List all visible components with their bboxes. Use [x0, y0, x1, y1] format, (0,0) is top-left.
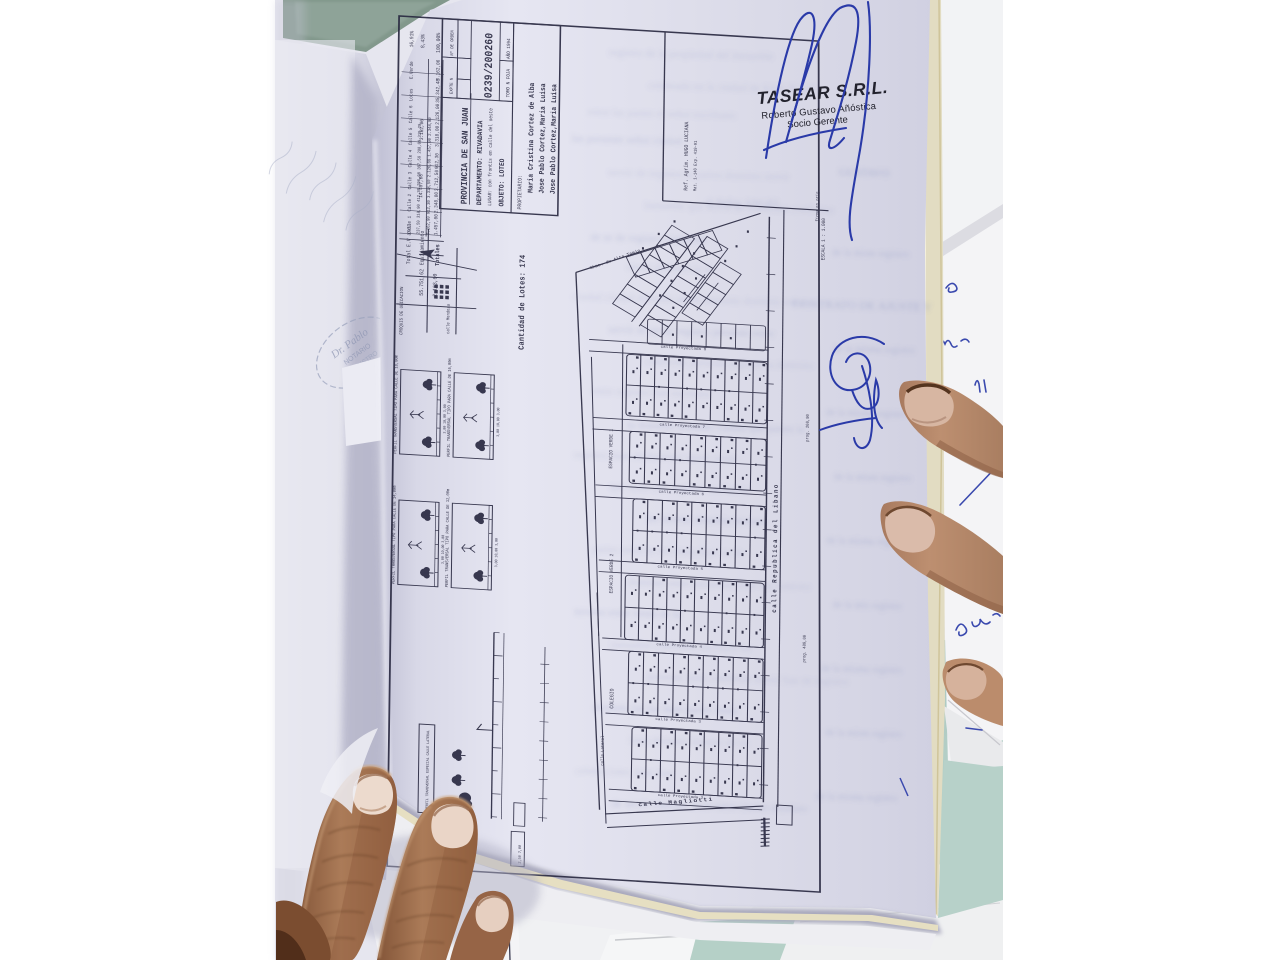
- svg-text:ESPACIO VERDE 1: ESPACIO VERDE 1: [608, 429, 615, 469]
- svg-text:55.751,62: 55.751,62: [419, 269, 426, 296]
- svg-text:3,00 10,00 3,00: 3,00 10,00 3,00: [495, 538, 500, 567]
- svg-text:Calle 2: Calle 2: [407, 193, 414, 211]
- svg-text:Maria Cristina Cortez de Alba: Maria Cristina Cortez de Alba: [527, 83, 537, 194]
- svg-text:3.318,00: 3.318,00: [434, 126, 441, 148]
- svg-text:de la mism registro: de la mism registro: [834, 472, 911, 485]
- svg-text:OBJETO: LOTEO: OBJETO: LOTEO: [497, 158, 506, 206]
- svg-text:ESPACIO VERDE 2: ESPACIO VERDE 2: [608, 553, 615, 593]
- svg-text:PROPIETARIO:: PROPIETARIO:: [517, 175, 524, 210]
- svg-text:16,91%: 16,91%: [409, 31, 416, 48]
- svg-text:Ref. Agrim. HUGO LUCIANA: Ref. Agrim. HUGO LUCIANA: [683, 121, 690, 191]
- svg-text:3.712,50: 3.712,50: [434, 170, 441, 192]
- svg-text:1.457,00: 1.457,00: [433, 214, 440, 236]
- svg-text:calle Lateral: calle Lateral: [600, 735, 606, 766]
- svg-text:prog. 260,00: prog. 260,00: [806, 414, 811, 442]
- svg-text:2.126,00: 2.126,00: [434, 103, 441, 125]
- svg-text:Mat. 1-140 Exp. 410-91: Mat. 1-140 Exp. 410-91: [694, 140, 699, 191]
- svg-text:prog. 480,00: prog. 480,00: [803, 634, 808, 662]
- svg-text:firma en orig.: firma en orig.: [815, 189, 821, 222]
- svg-text:TOMO N FOJA: TOMO N FOJA: [505, 69, 512, 98]
- svg-text:COLEGIO: COLEGIO: [609, 688, 616, 708]
- svg-text:de la mism registro: de la mism registro: [832, 247, 909, 260]
- svg-text:de la misma registro: de la misma registro: [816, 791, 898, 804]
- svg-text:GUSTAVO: GUSTAVO: [839, 167, 890, 180]
- svg-text:0239/200260: 0239/200260: [483, 32, 497, 98]
- svg-text:Calle 3: Calle 3: [407, 171, 414, 189]
- svg-text:8,43%: 8,43%: [420, 34, 427, 48]
- svg-text:Calle 6: Calle 6: [408, 105, 415, 123]
- svg-text:de la mism registro: de la mism registro: [825, 727, 902, 740]
- svg-text:100,00%: 100,00%: [436, 32, 443, 53]
- svg-text:de la mis registro: de la mis registro: [833, 600, 902, 613]
- svg-text:de la misma registro: de la misma registro: [821, 663, 903, 676]
- svg-text:2.348,00: 2.348,00: [433, 192, 440, 214]
- svg-text:Jose Pablo Cortez,Maria Luisa: Jose Pablo Cortez,Maria Luisa: [549, 84, 559, 195]
- svg-text:DEPARTAMENTO: RIVADAVIA: DEPARTAMENTO: RIVADAVIA: [475, 120, 485, 205]
- svg-text:912,30: 912,30: [434, 153, 441, 169]
- svg-text:calle Mendoza: calle Mendoza: [446, 303, 452, 334]
- svg-text:celebra lotes Juan San: celebra lotes Juan San: [575, 765, 673, 780]
- svg-text:CROQUIS DE UBICACION: CROQUIS DE UBICACION: [399, 286, 405, 335]
- svg-text:Total E.V area: Total E.V area: [406, 224, 413, 265]
- svg-text:3.162,06: 3.162,06: [435, 59, 442, 81]
- svg-text:Cantidad de Lotes: 174: Cantidad de Lotes: 174: [518, 254, 528, 350]
- svg-text:ESCALA 1 : 1.000: ESCALA 1 : 1.000: [820, 218, 827, 261]
- svg-text:3,00 10,00 3,00: 3,00 10,00 3,00: [497, 407, 502, 436]
- svg-text:de la misma registro: de la misma registro: [833, 343, 915, 356]
- svg-text:al Señor ANGEL: al Señor ANGEL: [705, 196, 781, 210]
- svg-text:Jose Pablo Cortez,Maria Luisa: Jose Pablo Cortez,Maria Luisa: [538, 83, 548, 194]
- svg-text:E.Verde: E.Verde: [408, 61, 415, 79]
- svg-text:Calle 5: Calle 5: [407, 127, 414, 145]
- svg-text:35.342,48: 35.342,48: [435, 79, 442, 103]
- svg-text:Lotes: Lotes: [408, 88, 415, 101]
- svg-text:EXPTE N: EXPTE N: [450, 77, 455, 94]
